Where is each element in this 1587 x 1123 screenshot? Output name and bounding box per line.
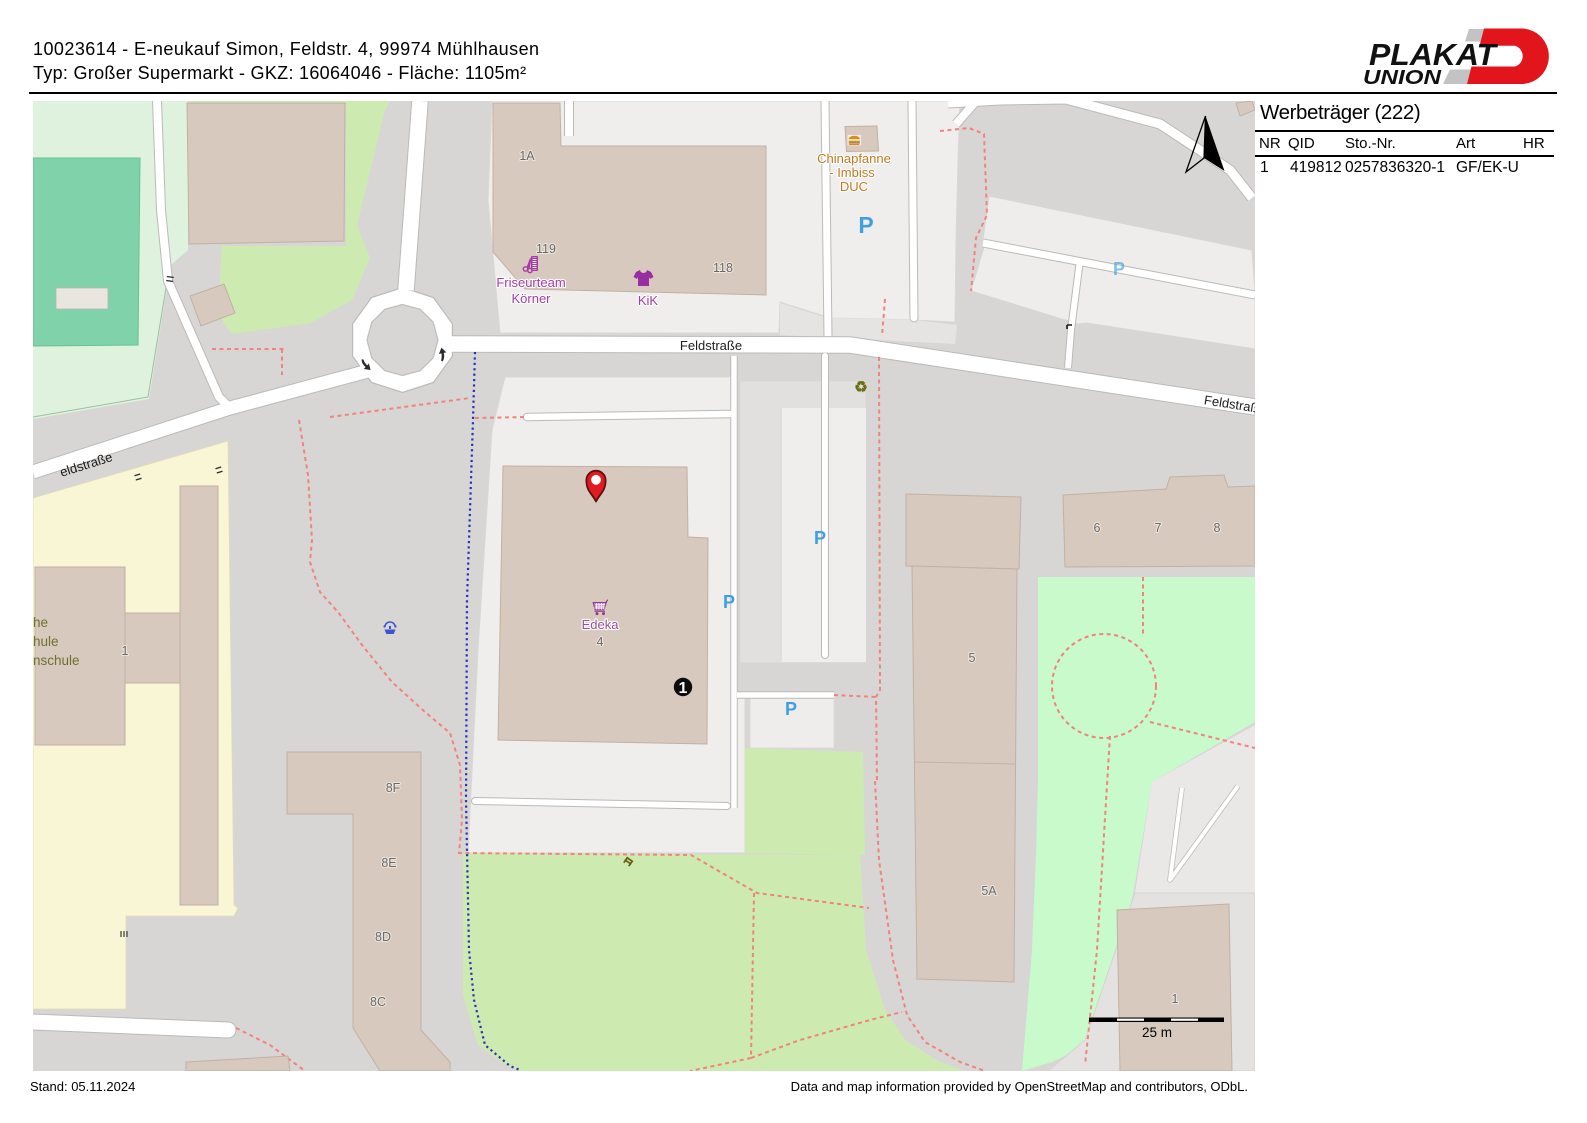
svg-text:KiK: KiK: [638, 293, 659, 308]
svg-text:UNION: UNION: [1363, 67, 1442, 89]
svg-text:DUC: DUC: [840, 179, 868, 194]
svg-text:1: 1: [122, 644, 129, 658]
svg-text:Edeka: Edeka: [582, 617, 620, 632]
svg-text:8D: 8D: [375, 930, 391, 944]
svg-text:P: P: [814, 528, 826, 548]
svg-text:8E: 8E: [381, 856, 396, 870]
svg-text:7: 7: [1155, 521, 1162, 535]
svg-text:P: P: [1113, 259, 1125, 279]
svg-text:P: P: [723, 592, 735, 612]
svg-text:5A: 5A: [981, 884, 997, 898]
svg-text:5: 5: [969, 651, 976, 665]
svg-text:8F: 8F: [386, 781, 401, 795]
svg-text:4: 4: [597, 635, 604, 649]
svg-text:1A: 1A: [519, 149, 535, 163]
svg-text:P: P: [858, 212, 873, 238]
svg-text:8C: 8C: [370, 995, 386, 1009]
svg-text:119: 119: [536, 242, 556, 256]
svg-text:Körner: Körner: [511, 291, 551, 306]
svg-text:Friseurteam: Friseurteam: [496, 275, 565, 290]
svg-text:♻: ♻: [854, 379, 867, 396]
svg-text:Chinapfanne: Chinapfanne: [817, 151, 891, 166]
svg-text:hule: hule: [33, 634, 59, 649]
svg-text:- Imbiss: - Imbiss: [829, 165, 875, 180]
svg-text:1: 1: [679, 680, 688, 697]
svg-text:P: P: [785, 699, 797, 719]
svg-text:8: 8: [1214, 521, 1221, 535]
svg-text:118: 118: [713, 261, 733, 275]
svg-text:25 m: 25 m: [1142, 1025, 1172, 1040]
svg-text:he: he: [33, 615, 48, 630]
svg-text:nschule: nschule: [33, 653, 80, 668]
svg-text:1: 1: [1172, 992, 1179, 1006]
svg-text:Feldstraße: Feldstraße: [680, 338, 742, 353]
svg-text:6: 6: [1094, 521, 1101, 535]
